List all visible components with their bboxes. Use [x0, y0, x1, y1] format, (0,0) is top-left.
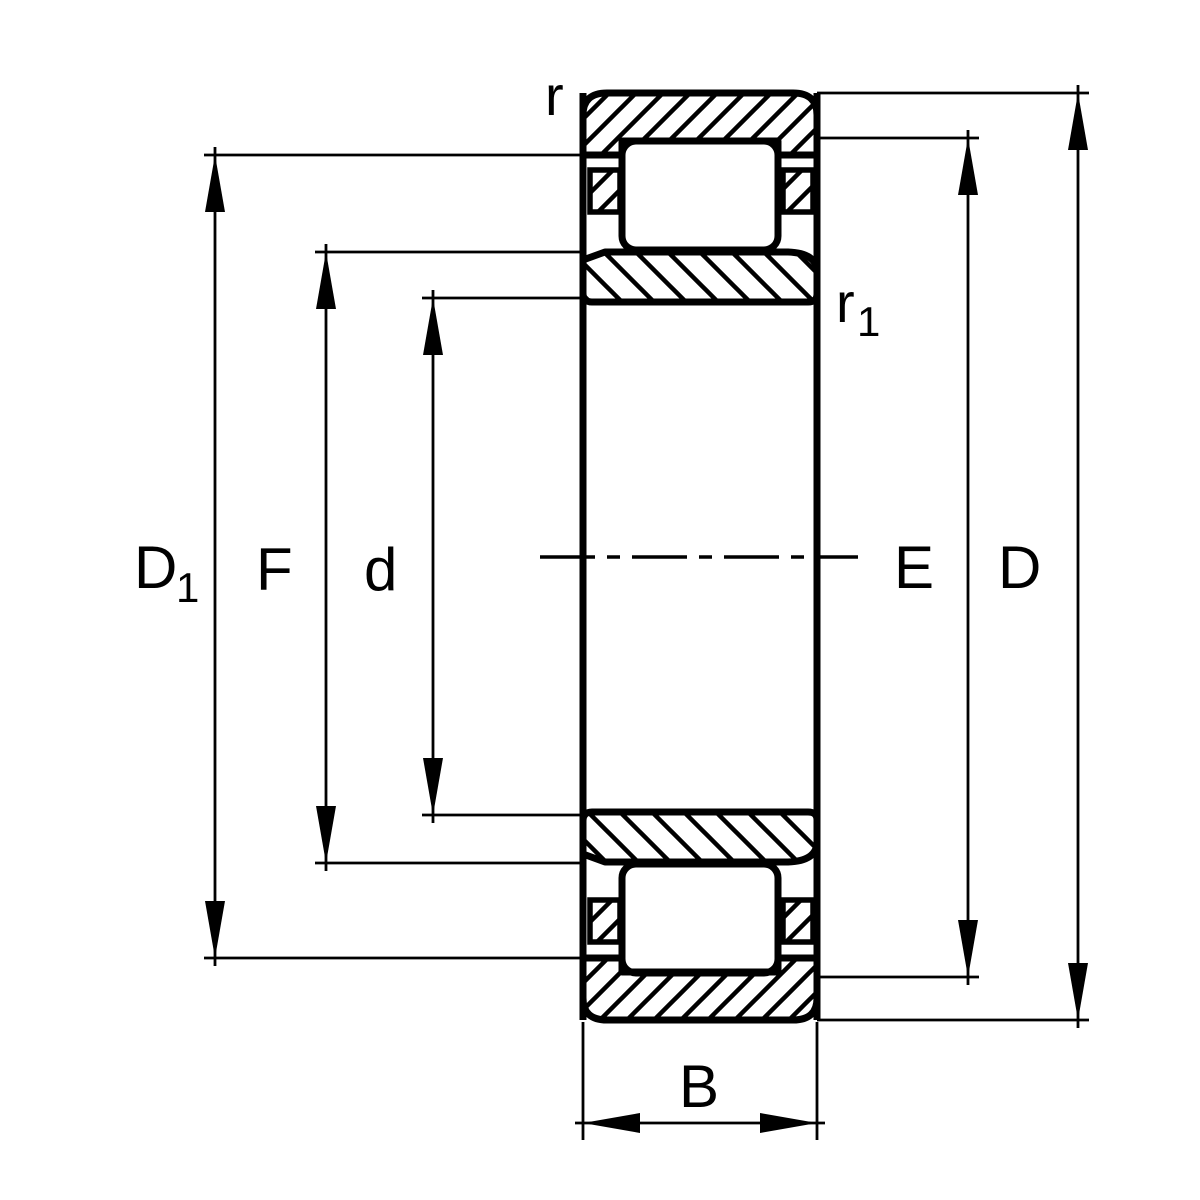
label-d: d [364, 536, 397, 603]
inner-ring-bottom-section [583, 812, 817, 862]
label-f: F [256, 536, 293, 603]
cage-top-right [783, 170, 813, 212]
roller-bottom [622, 864, 778, 973]
diagram-canvas: r r 1 D 1 F d E D B [0, 0, 1200, 1200]
label-r1-sub: 1 [857, 298, 880, 345]
roller-top [622, 141, 778, 250]
cage-bottom-right [783, 900, 813, 942]
label-d1-sub: 1 [176, 564, 199, 611]
label-b: B [679, 1053, 719, 1120]
label-big-d: D [998, 534, 1041, 601]
label-e: E [894, 534, 934, 601]
bearing-dimension-diagram: r r 1 D 1 F d E D B [0, 0, 1200, 1200]
label-d1-base: D [134, 534, 177, 601]
label-r1-base: r [836, 271, 855, 334]
cage-top-left [590, 170, 620, 212]
cage-bottom-left [590, 900, 620, 942]
inner-ring-top-section [583, 252, 817, 302]
label-r: r [545, 64, 564, 127]
